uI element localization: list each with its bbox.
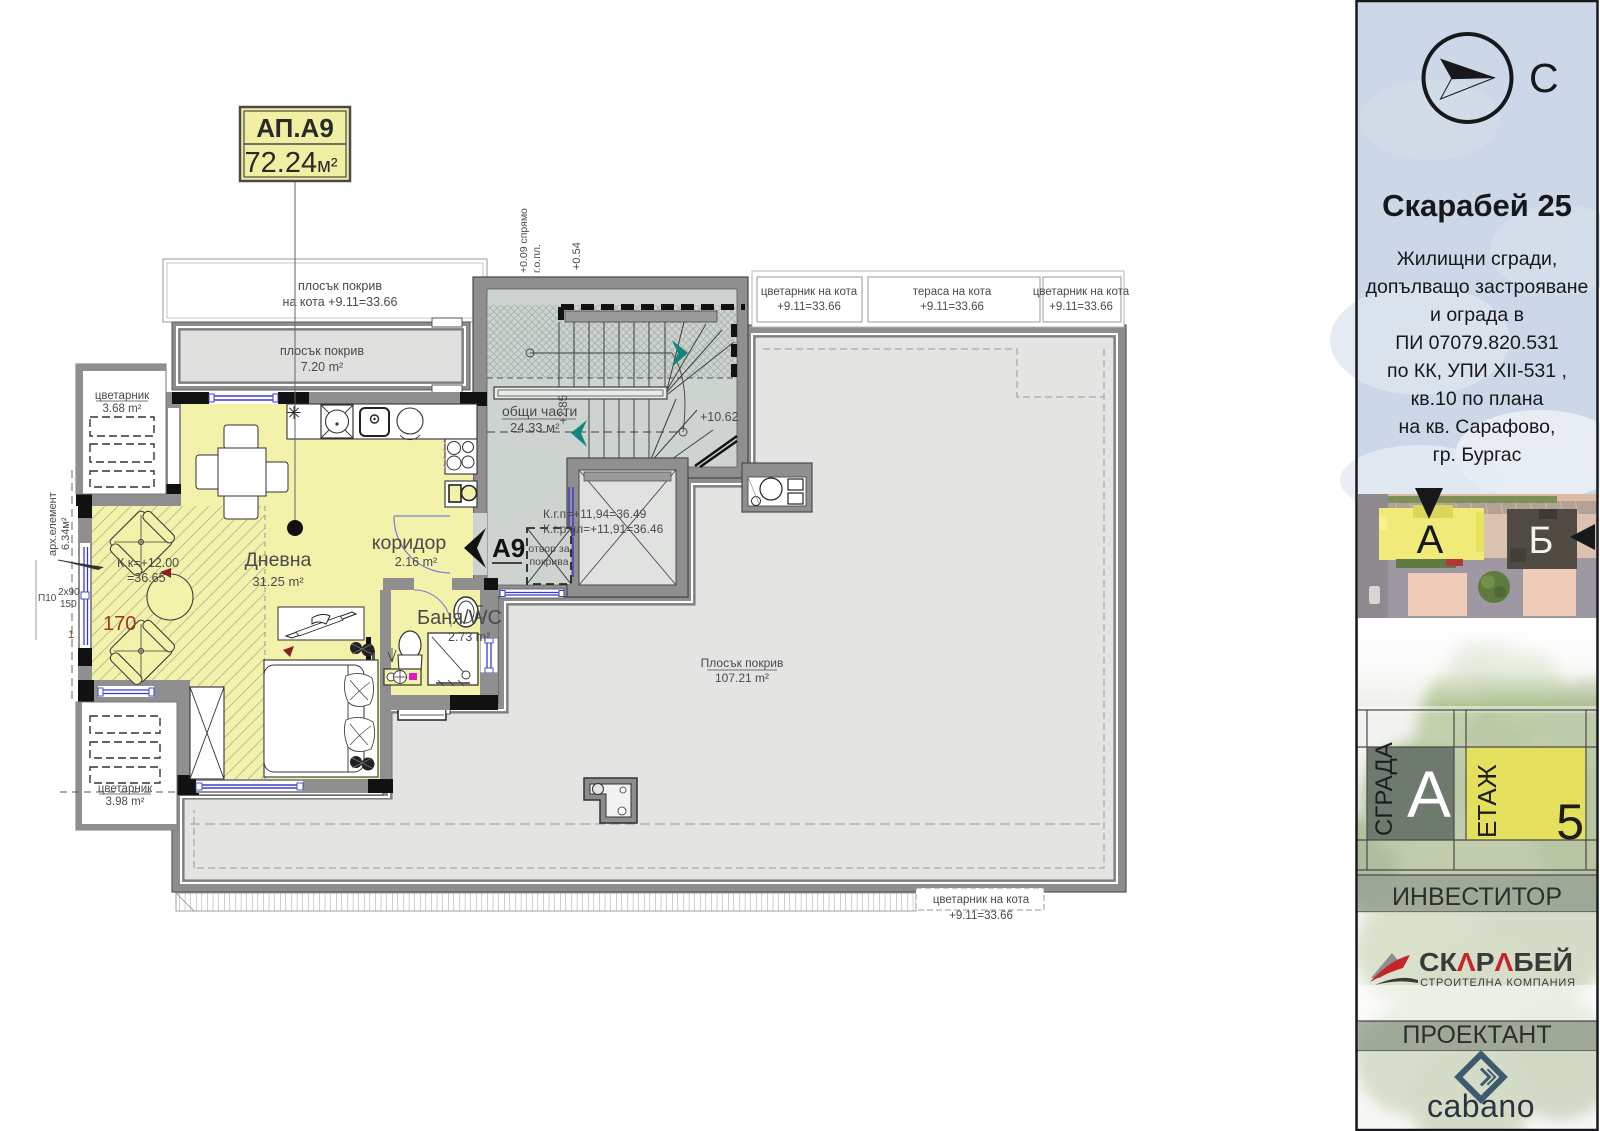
svg-text:+9.11=33.66: +9.11=33.66	[1049, 301, 1113, 313]
svg-text:СКΛРΛБЕЙ: СКΛРΛБЕЙ	[1419, 947, 1573, 977]
svg-text:цветарник: цветарник	[95, 390, 150, 402]
svg-text:+0.54: +0.54	[571, 242, 583, 270]
svg-text:кв.10 по плана: кв.10 по плана	[1411, 388, 1544, 410]
svg-text:отвор за: отвор за	[528, 543, 569, 555]
svg-text:арх.елемент: арх.елемент	[47, 492, 59, 556]
svg-text:К.г.р.пл=+11,91=36.46: К.г.р.пл=+11,91=36.46	[543, 522, 664, 536]
svg-text:6.34м²: 6.34м²	[60, 517, 72, 550]
svg-text:Б: Б	[1529, 520, 1554, 562]
svg-text:ПРОЕКТАНТ: ПРОЕКТАНТ	[1402, 1021, 1551, 1049]
svg-text:цветарник на кота: цветарник на кота	[933, 894, 1030, 906]
svg-text:допълващо застрояване: допълващо застрояване	[1366, 276, 1589, 298]
svg-text:Скарабей 25: Скарабей 25	[1382, 188, 1572, 223]
svg-text:по КК, УПИ XII-531 ,: по КК, УПИ XII-531 ,	[1387, 360, 1567, 382]
svg-text:Баня/WC: Баня/WC	[417, 607, 502, 629]
svg-text:24.33 м²: 24.33 м²	[510, 420, 560, 435]
svg-text:✳: ✳	[286, 403, 301, 423]
svg-text:+0.09 спрямо: +0.09 спрямо	[518, 208, 530, 273]
svg-text:2.73 m²: 2.73 m²	[448, 630, 490, 644]
svg-text:г.о.пл.: г.о.пл.	[531, 244, 543, 273]
svg-text:АП.А9: АП.А9	[256, 113, 334, 143]
svg-text:+10.62: +10.62	[700, 410, 739, 424]
svg-text:7.20 m²: 7.20 m²	[301, 360, 343, 374]
svg-text:К.г.п=+11,94=36.49: К.г.п=+11,94=36.49	[543, 507, 647, 521]
svg-text:150: 150	[60, 599, 77, 610]
svg-text:и ограда в: и ограда в	[1430, 304, 1524, 326]
svg-text:цветарник на кота: цветарник на кота	[761, 286, 858, 298]
svg-text:А: А	[1407, 757, 1451, 831]
svg-text:коридор: коридор	[372, 532, 447, 554]
svg-text:тераса на кота: тераса на кота	[913, 286, 992, 298]
svg-text:31.25 m²: 31.25 m²	[252, 574, 304, 589]
svg-text:5: 5	[1556, 794, 1584, 850]
svg-text:+2.85: +2.85	[558, 395, 570, 424]
svg-text:ИНВЕСТИТОР: ИНВЕСТИТОР	[1392, 883, 1562, 911]
svg-text:на кота +9.11=33.66: на кота +9.11=33.66	[283, 295, 398, 309]
svg-text:СГРАДА: СГРАДА	[1371, 742, 1398, 836]
svg-text:цветарник: цветарник	[98, 783, 153, 795]
svg-text:плосък покрив: плосък покрив	[280, 344, 364, 358]
svg-text:С: С	[1529, 55, 1559, 101]
svg-text:П10: П10	[38, 593, 57, 604]
svg-text:Жилищни сгради,: Жилищни сгради,	[1397, 248, 1558, 270]
svg-text:3.68 m²: 3.68 m²	[103, 403, 142, 415]
svg-text:Дневна: Дневна	[245, 549, 312, 571]
svg-text:2x90: 2x90	[58, 587, 80, 598]
svg-text:плосък покрив: плосък покрив	[298, 279, 382, 293]
svg-text:на кв. Сарафово,: на кв. Сарафово,	[1399, 416, 1556, 438]
svg-text:+9.11=33.66: +9.11=33.66	[777, 301, 841, 313]
svg-text:Плосък покрив: Плосък покрив	[701, 656, 784, 670]
svg-text:cabano: cabano	[1427, 1088, 1535, 1124]
svg-text:К.к=+12.00: К.к=+12.00	[117, 556, 179, 570]
svg-text:цветарник на кота: цветарник на кота	[1033, 286, 1130, 298]
svg-text:1: 1	[68, 629, 74, 641]
svg-text:3.98 m²: 3.98 m²	[106, 796, 145, 808]
svg-text:ЕТАЖ: ЕТАЖ	[1472, 764, 1502, 838]
svg-text:ПИ 07079.820.531: ПИ 07079.820.531	[1395, 332, 1559, 354]
svg-text:СТРОИТЕЛНА КОМПАНИЯ: СТРОИТЕЛНА КОМПАНИЯ	[1420, 977, 1576, 989]
svg-text:+9.11=33.66: +9.11=33.66	[949, 910, 1013, 922]
svg-text:=36.65: =36.65	[127, 571, 166, 585]
svg-text:покрива: покрива	[529, 556, 568, 568]
svg-text:А: А	[1417, 518, 1444, 562]
svg-text:+9.11=33.66: +9.11=33.66	[920, 301, 984, 313]
svg-text:2.16 m²: 2.16 m²	[395, 555, 437, 569]
svg-text:А9: А9	[492, 533, 525, 563]
svg-text:170: 170	[103, 613, 136, 635]
svg-text:гр. Бургас: гр. Бургас	[1433, 444, 1522, 466]
svg-text:107.21 m²: 107.21 m²	[715, 671, 769, 685]
